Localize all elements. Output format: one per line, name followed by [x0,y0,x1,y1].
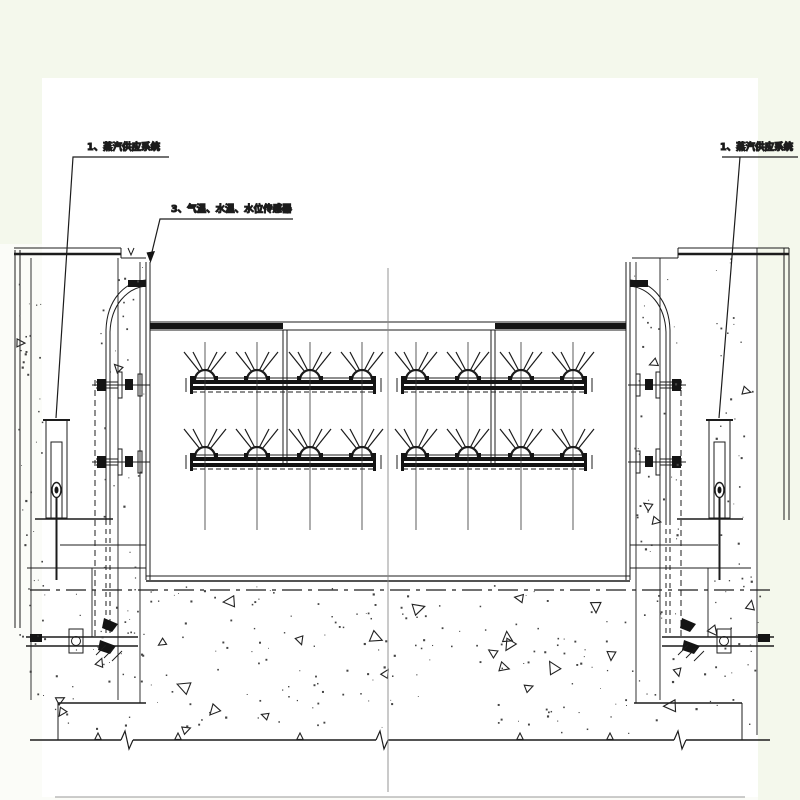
top-margin-band [0,0,800,78]
left-margin-band [0,78,42,244]
engineering-drawing: 1、蒸汽供应系统 3、气温、水温、水位传感器 1、蒸汽供应系统 [0,0,800,800]
paper-area [42,78,758,797]
drawing-canvas: 1、蒸汽供应系统 3、气温、水温、水位传感器 1、蒸汽供应系统 [0,0,800,800]
top-band-left [150,323,283,329]
top-band-right [495,323,626,329]
label-sensors: 3、气温、水温、水位传感器 [171,203,292,215]
wall-flange-bar [128,280,146,287]
wall-flange-bar [630,280,648,287]
right-margin-band [758,78,800,800]
label-steam-supply-left: 1、蒸汽供应系统 [87,141,161,153]
label-steam-supply-right: 1、蒸汽供应系统 [720,141,794,153]
